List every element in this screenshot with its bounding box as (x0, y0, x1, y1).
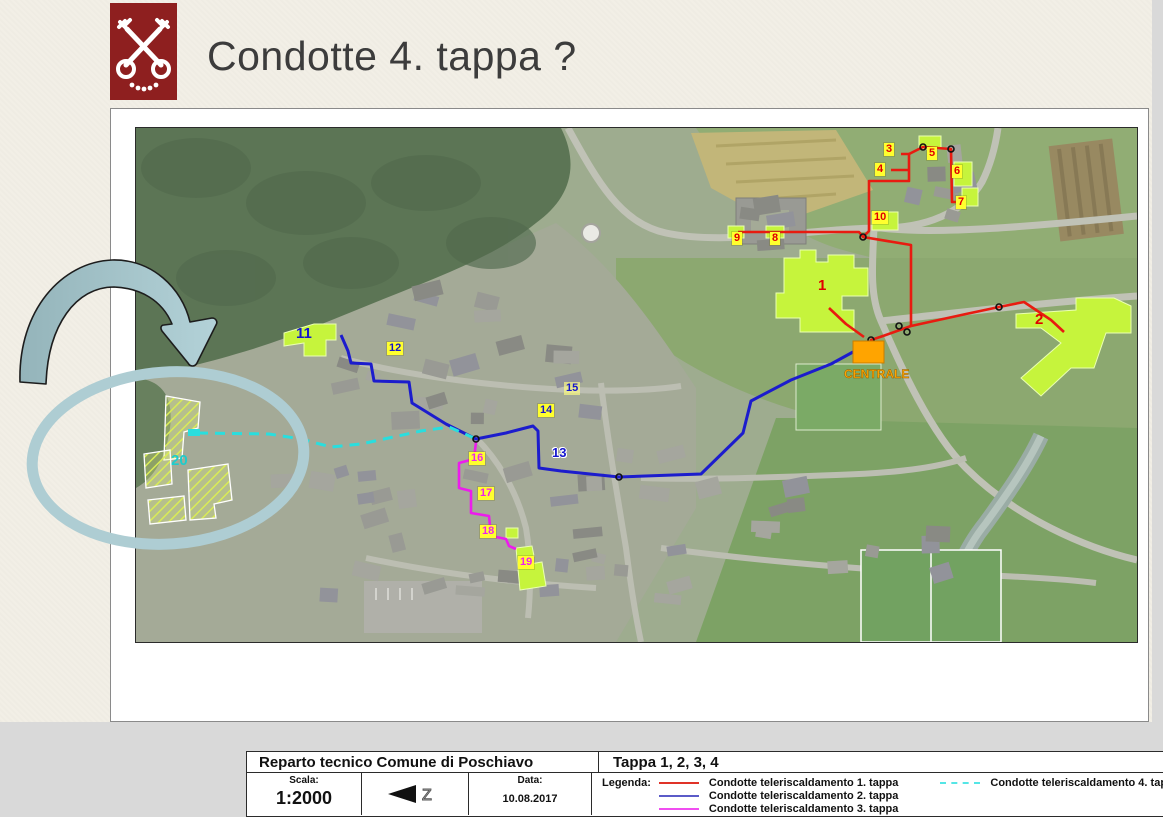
window-edge-strip (1152, 0, 1163, 722)
legend-column-1: Condotte teleriscaldamento 1. tappa Cond… (659, 777, 898, 815)
legend-swatch-tappa3 (659, 808, 699, 810)
legend-cell: Legenda: Condotte teleriscaldamento 1. t… (592, 773, 1163, 815)
crossed-keys-icon (110, 3, 177, 100)
legend-item-tappa3: Condotte teleriscaldamento 3. tappa (659, 803, 898, 815)
date-label: Data: (469, 775, 591, 786)
legend-title: Legenda: (602, 777, 651, 815)
legend-swatch-tappa1 (659, 782, 699, 784)
map-plan-panel: CENTRALE 1234567891011121314151617181920… (110, 108, 1149, 722)
svg-text:Z: Z (422, 787, 432, 804)
legend-swatch-tappa4 (940, 782, 980, 784)
plan-sheet-title: Tappa 1, 2, 3, 4 (599, 752, 1163, 772)
aerial-map: CENTRALE 1234567891011121314151617181920 (135, 127, 1138, 643)
slide-title: Condotte 4. tappa ? (207, 33, 577, 80)
date-value: 10.08.2017 (469, 793, 591, 805)
plan-department: Reparto tecnico Comune di Poschiavo (247, 752, 599, 772)
legend-swatch-tappa2 (659, 795, 699, 797)
aerial-photo-canvas: CENTRALE (136, 128, 1137, 642)
legend-column-2: Condotte teleriscaldamento 4. tappa (940, 777, 1163, 815)
centrale-label: CENTRALE (844, 367, 909, 381)
date-cell: Data: 10.08.2017 (469, 773, 592, 815)
plan-title-block: Reparto tecnico Comune di Poschiavo Tapp… (246, 751, 1163, 817)
scale-value: 1:2000 (247, 788, 361, 809)
north-arrow-icon: Z (386, 783, 444, 805)
scale-cell: Scala: 1:2000 (247, 773, 362, 815)
legend-item-tappa2: Condotte teleriscaldamento 2. tappa (659, 790, 898, 802)
poschiavo-crossed-keys-logo (110, 3, 177, 100)
north-arrow-cell: Z (362, 773, 469, 815)
scale-label: Scala: (247, 775, 361, 786)
legend-item-tappa1: Condotte teleriscaldamento 1. tappa (659, 777, 898, 789)
presentation-slide: Condotte 4. tappa ? (0, 0, 1152, 722)
legend-item-tappa4: Condotte teleriscaldamento 4. tappa (940, 777, 1163, 789)
